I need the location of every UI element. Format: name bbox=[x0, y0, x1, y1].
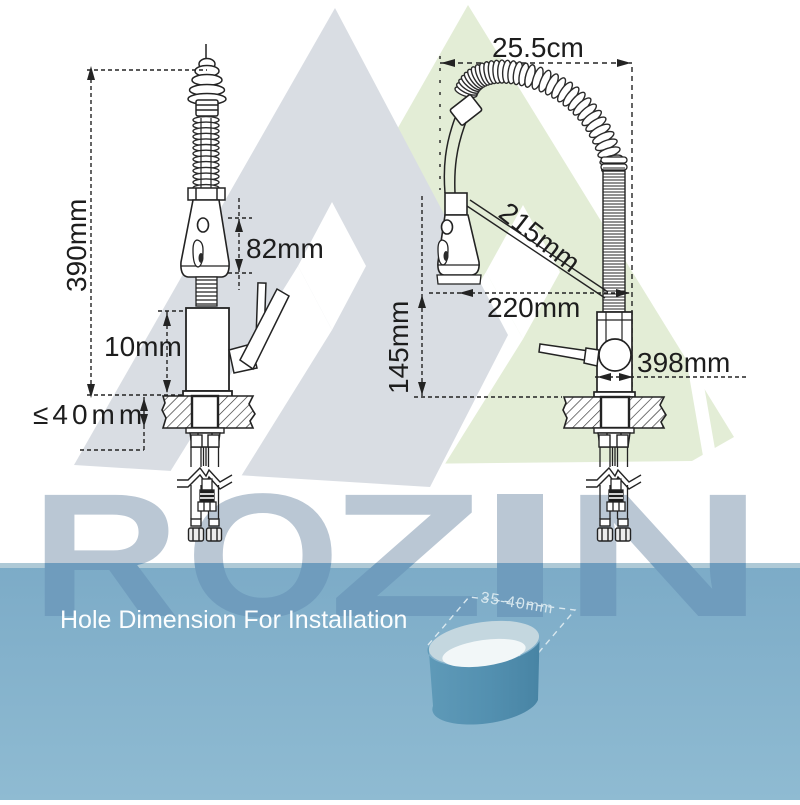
svg-text:25.5cm: 25.5cm bbox=[492, 32, 584, 63]
svg-text:390mm: 390mm bbox=[61, 199, 92, 292]
svg-text:398mm: 398mm bbox=[637, 347, 730, 378]
svg-text:82mm: 82mm bbox=[246, 233, 324, 264]
svg-text:10mm: 10mm bbox=[104, 331, 182, 362]
svg-text:145mm: 145mm bbox=[383, 301, 414, 394]
svg-text:220mm: 220mm bbox=[487, 292, 580, 323]
svg-text:≤40mm: ≤40mm bbox=[33, 399, 146, 430]
svg-text:Hole Dimension For Installatio: Hole Dimension For Installation bbox=[60, 606, 407, 634]
